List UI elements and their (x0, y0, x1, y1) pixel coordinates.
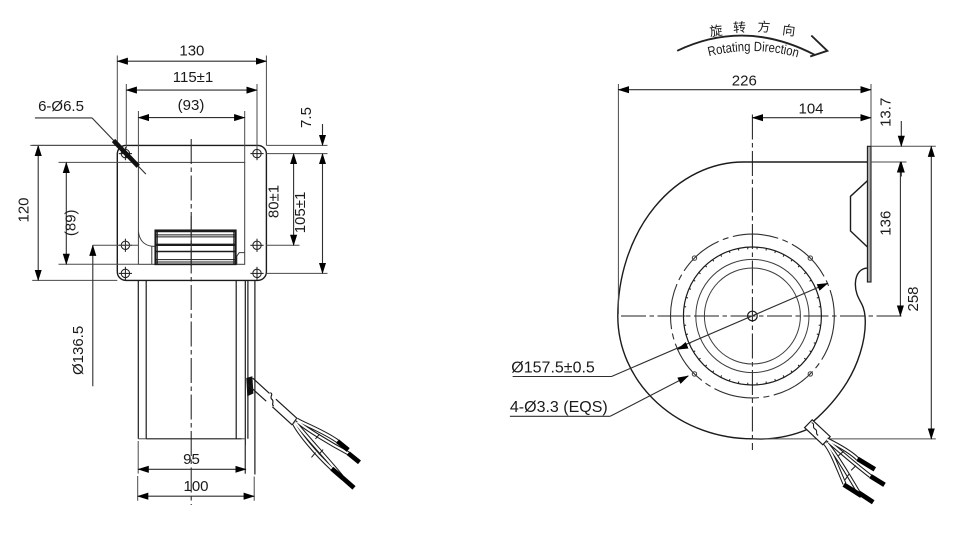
svg-text:方: 方 (757, 19, 771, 35)
svg-text:100: 100 (183, 478, 208, 495)
svg-text:7.5: 7.5 (298, 107, 315, 128)
svg-text:Ø157.5±0.5: Ø157.5±0.5 (511, 360, 595, 377)
svg-text:136: 136 (877, 211, 894, 236)
svg-text:115±1: 115±1 (173, 69, 214, 86)
svg-text:104: 104 (798, 101, 823, 118)
svg-text:转: 转 (733, 20, 747, 36)
svg-text:258: 258 (905, 286, 922, 311)
svg-text:95: 95 (183, 451, 200, 468)
svg-text:80±1: 80±1 (265, 185, 282, 218)
svg-text:105±1: 105±1 (292, 192, 309, 234)
svg-text:向: 向 (782, 22, 797, 38)
svg-text:Ø136.5: Ø136.5 (70, 326, 87, 375)
svg-text:(93): (93) (178, 97, 205, 114)
svg-text:120: 120 (16, 197, 33, 222)
svg-text:13.7: 13.7 (877, 98, 894, 127)
svg-text:226: 226 (732, 73, 757, 90)
svg-text:(89): (89) (63, 209, 80, 236)
svg-text:6-Ø6.5: 6-Ø6.5 (38, 98, 84, 115)
svg-text:4-Ø3.3 (EQS): 4-Ø3.3 (EQS) (510, 399, 608, 416)
svg-text:130: 130 (179, 42, 204, 59)
svg-text:旋: 旋 (709, 23, 724, 39)
